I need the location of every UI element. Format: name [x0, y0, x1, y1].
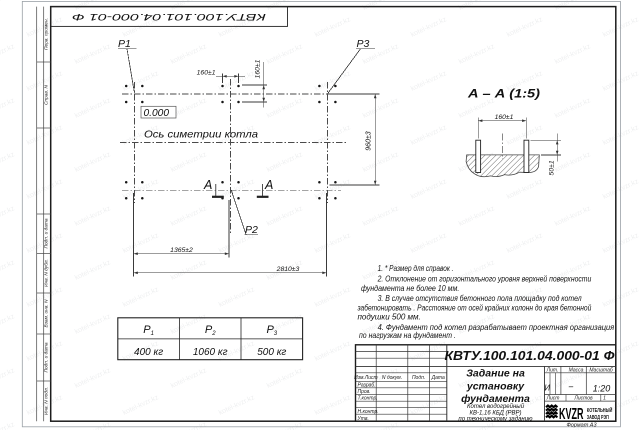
svg-text:N докум.: N докум.: [382, 375, 402, 381]
svg-text:Формат А3: Формат А3: [566, 423, 597, 429]
svg-text:Р3: Р3: [357, 38, 370, 50]
svg-text:Перв. примен.: Перв. примен.: [44, 18, 50, 50]
svg-text:А: А: [203, 178, 212, 192]
svg-text:Котел водогрейный: Котел водогрейный: [467, 403, 525, 410]
svg-text:Инв. N дубл.: Инв. N дубл.: [44, 259, 50, 287]
svg-text:Задание на: Задание на: [466, 368, 525, 380]
svg-text:А – А (1:5): А – А (1:5): [467, 87, 540, 101]
svg-text:160±1: 160±1: [495, 114, 514, 121]
svg-text:КОТЕЛЬНЫЙ: КОТЕЛЬНЫЙ: [587, 406, 613, 414]
svg-text:160±1: 160±1: [197, 70, 216, 77]
svg-text:160±1: 160±1: [255, 59, 262, 78]
svg-text:КВ-1,16 КБД (РВР): КВ-1,16 КБД (РВР): [469, 410, 521, 416]
svg-text:–: –: [568, 382, 574, 391]
svg-text:Взам. инв. N: Взам. инв. N: [44, 299, 50, 327]
svg-text:фундамента не более 10 мм.: фундамента не более 10 мм.: [361, 284, 459, 293]
svg-text:Т.контр.: Т.контр.: [358, 395, 378, 401]
svg-text:Масса: Масса: [569, 368, 584, 374]
svg-text:1:20: 1:20: [593, 384, 611, 394]
svg-text:Подп. и дата: Подп. и дата: [44, 342, 50, 372]
svg-text:Утв.: Утв.: [358, 416, 369, 422]
svg-text:2810±3: 2810±3: [276, 266, 300, 273]
svg-text:1. * Размер для справок .: 1. * Размер для справок .: [378, 264, 454, 273]
svg-text:Н.контр.: Н.контр.: [358, 409, 379, 415]
svg-text:50±1: 50±1: [549, 160, 556, 175]
svg-text:400 кг: 400 кг: [134, 347, 163, 358]
svg-text:А: А: [264, 178, 273, 192]
svg-text:Р2: Р2: [245, 224, 258, 236]
svg-text:1: 1: [603, 396, 606, 402]
svg-text:Справ. N: Справ. N: [44, 84, 50, 105]
svg-text:установку: установку: [466, 381, 525, 393]
svg-text:ЗАВОД РЭП: ЗАВОД РЭП: [587, 415, 609, 421]
svg-text:Подп.: Подп.: [412, 375, 425, 381]
svg-text:подушки 500 мм.: подушки 500 мм.: [358, 313, 421, 322]
svg-text:по нагрузкам на фундамент .: по нагрузкам на фундамент .: [359, 331, 456, 340]
svg-text:Лит.: Лит.: [546, 368, 559, 374]
svg-text:500 кг: 500 кг: [257, 347, 286, 358]
svg-text:КВТУ.100.101.04.000-01 Ф: КВТУ.100.101.04.000-01 Ф: [445, 349, 615, 363]
svg-text:Листов: Листов: [573, 396, 593, 402]
svg-text:Масштаб: Масштаб: [589, 368, 613, 374]
svg-text:Р1: Р1: [118, 38, 131, 50]
svg-text:Дата: Дата: [431, 375, 445, 381]
svg-text:Инв. N подл.: Инв. N подл.: [44, 387, 50, 415]
svg-text:Разраб.: Разраб.: [358, 382, 376, 388]
svg-text:2. Отклонение от горизонтальн: 2. Отклонение от горизонтального уровня …: [377, 275, 592, 284]
svg-text:1060 кг: 1060 кг: [193, 347, 228, 358]
svg-text:КВТУ.100.101.04.000-01 Ф: КВТУ.100.101.04.000-01 Ф: [72, 12, 266, 22]
svg-text:960±3: 960±3: [365, 131, 372, 151]
svg-text:Подп. и дата: Подп. и дата: [44, 218, 50, 248]
svg-text:3. В случае отсутствия бетонн: 3. В случае отсутствия бетонного пола пл…: [378, 294, 582, 303]
svg-text:Ось симетрии котла: Ось симетрии котла: [144, 130, 258, 141]
svg-text:Пров.: Пров.: [358, 389, 371, 395]
svg-text:И: И: [544, 384, 550, 393]
svg-text:по техническому заданию: по техническому заданию: [458, 417, 533, 423]
svg-text:забетонировать . Расстояние от: забетонировать . Расстояние от осей край…: [357, 303, 592, 312]
svg-text:Изм.Лист: Изм.Лист: [354, 375, 378, 381]
svg-text:Лист: Лист: [546, 396, 560, 402]
svg-text:0.000: 0.000: [144, 108, 170, 119]
svg-text:KVZR: KVZR: [559, 406, 584, 423]
svg-text:1365±2: 1365±2: [170, 247, 193, 254]
